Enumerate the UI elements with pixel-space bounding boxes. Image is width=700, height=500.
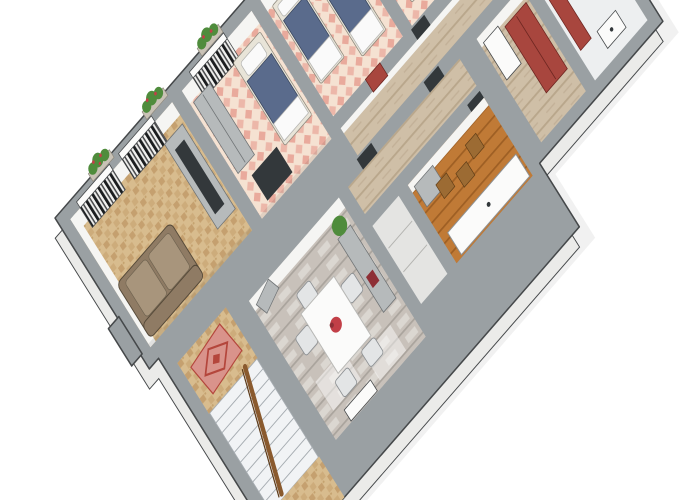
floor-plan-stage (0, 0, 700, 500)
floor-plan-rendering (0, 0, 700, 500)
